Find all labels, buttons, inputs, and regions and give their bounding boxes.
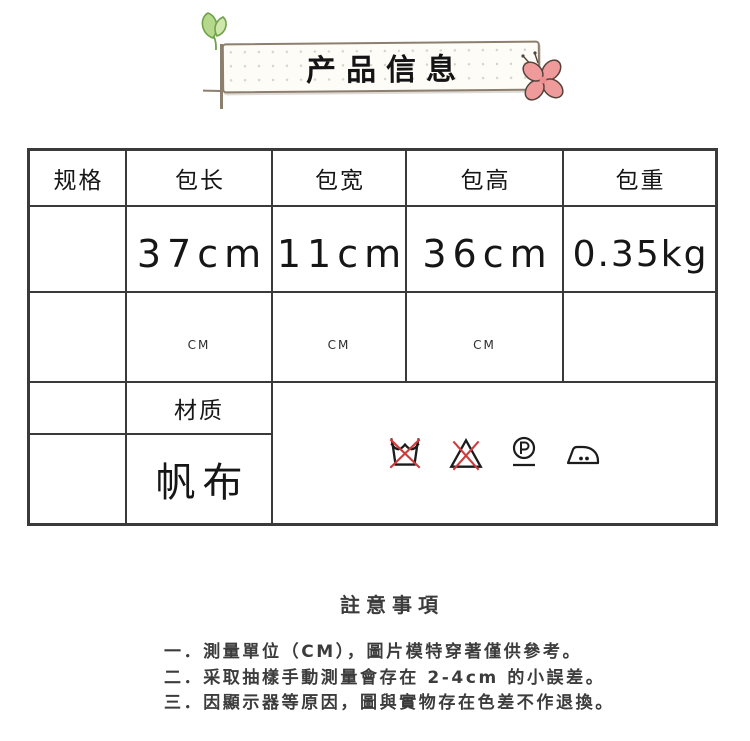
cell-width-value: 11cm [273, 207, 407, 293]
cell-material-empty-top [30, 383, 127, 435]
header-width: 包宽 [273, 151, 407, 207]
material-value-cell: 帆布 [127, 435, 273, 523]
notes-section: 註意事項 一．測量單位（CM），圖片模特穿著僅供參考。 二．采取抽樣手動測量會存… [164, 589, 614, 717]
spec-table: 规格 包长 包宽 包高 包重 37cm 11cm 36cm 0.35kg CM … [27, 148, 718, 526]
cell-weight-value: 0.35kg [564, 207, 715, 293]
cell-length-value: 37cm [127, 207, 273, 293]
cell-height-unit: CM [407, 293, 564, 383]
header-spec: 规格 [30, 151, 127, 207]
do-not-bleach-icon [448, 433, 484, 473]
notes-list: 一．測量單位（CM），圖片模特穿著僅供參考。 二．采取抽樣手動測量會存在 2-4… [164, 640, 614, 717]
note-item-3: 三．因顯示器等原因，圖與實物存在色差不作退換。 [164, 691, 614, 717]
header-weight: 包重 [564, 151, 715, 207]
banner-title: 产品信息 [296, 44, 466, 89]
notes-heading: 註意事項 [164, 589, 614, 618]
cell-unit-empty-left [30, 293, 127, 383]
product-info-banner: 产品信息 [222, 41, 540, 94]
cell-height-value: 36cm [407, 207, 564, 293]
flower-icon [514, 50, 566, 106]
care-symbols-cell [273, 383, 715, 523]
dry-clean-icon [509, 433, 539, 473]
cell-spec-empty [30, 207, 127, 293]
sprout-icon [193, 8, 245, 56]
cell-width-unit: CM [273, 293, 407, 383]
cell-material-empty-bottom [30, 435, 127, 523]
note-item-1: 一．測量單位（CM），圖片模特穿著僅供參考。 [164, 640, 614, 666]
cell-unit-empty-right [564, 293, 715, 383]
header-length: 包长 [127, 151, 273, 207]
do-not-wash-icon [387, 433, 423, 473]
note-item-2: 二．采取抽樣手動測量會存在 2-4cm 的小誤差。 [164, 666, 614, 692]
product-info-page: 产品信息 规格 包长 包宽 包高 包重 37cm 11cm [0, 0, 750, 741]
cell-length-unit: CM [127, 293, 273, 383]
header-height: 包高 [407, 151, 564, 207]
material-label-cell: 材质 [127, 383, 273, 435]
iron-icon [564, 433, 602, 473]
